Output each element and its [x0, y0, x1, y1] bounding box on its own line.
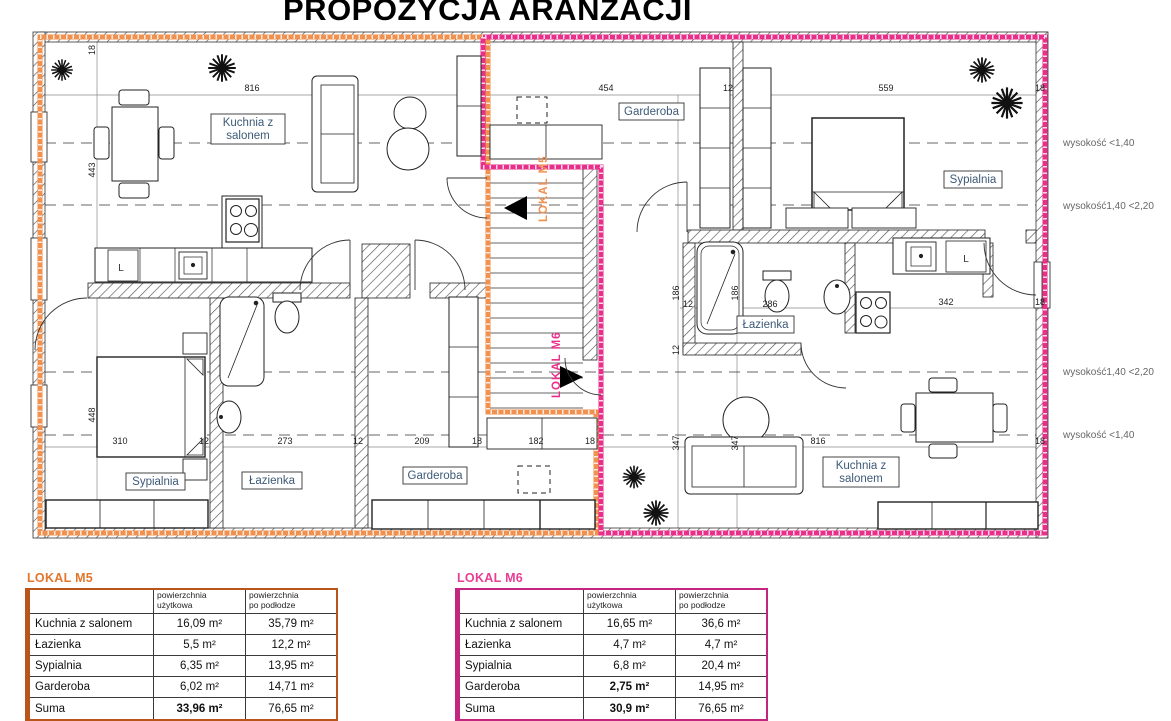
table-value-po-podlodze: 76,65 m²	[676, 698, 766, 719]
table-row-name: Garderoba	[30, 677, 154, 698]
dimension-label: 18	[472, 436, 482, 446]
dimension-label: 12	[199, 436, 209, 446]
dimension-label: 12	[723, 83, 733, 93]
room-label: Sypialnia	[944, 171, 1002, 188]
dimension-label: 448	[87, 407, 97, 422]
table-value-uzytkowa: 6,35 m²	[154, 656, 246, 677]
room-label-text: Łazienka	[249, 475, 296, 487]
table-row-name: Kuchnia z salonem	[30, 614, 154, 635]
dimension-label: 12	[671, 345, 681, 355]
table-value-po-podlodze: 36,6 m²	[676, 614, 766, 635]
side-tables-m5	[387, 97, 429, 170]
sofa-m5	[312, 76, 358, 192]
dimension-label: 18	[1035, 436, 1045, 446]
table-row-name: Suma	[460, 698, 584, 719]
table-value-po-podlodze: 12,2 m²	[246, 635, 336, 656]
room-label: Kuchnia zsalonem	[823, 457, 899, 487]
room-label-text: Kuchnia zsalonem	[836, 460, 887, 485]
kitchen-counter-m6	[893, 238, 990, 274]
sink-m6	[824, 280, 850, 314]
table-header-cell: powierzchniapo podłodze	[246, 590, 336, 614]
bed-m5	[97, 333, 207, 480]
room-label: Łazienka	[737, 316, 794, 333]
floor-plan: Kuchnia zsalonemSypialniaŁazienkaGardero…	[0, 0, 1171, 560]
area-table-grid: powierzchniaużytkowapowierzchniapo podło…	[455, 588, 768, 721]
dimension-label: 18	[585, 436, 595, 446]
table-value-po-podlodze: 14,95 m²	[676, 677, 766, 698]
cabinets-m6	[878, 502, 1038, 529]
dimension-label: 286	[762, 299, 777, 309]
corridor-cabinet-m6	[490, 97, 602, 159]
dimension-label: 342	[938, 297, 953, 307]
toilet-m5	[273, 293, 301, 333]
table-row-name: Suma	[30, 698, 154, 719]
dimension-label: 12	[353, 436, 363, 446]
table-value-uzytkowa: 16,09 m²	[154, 614, 246, 635]
height-zone-label: wysokość <1,40	[1062, 138, 1135, 149]
table-value-uzytkowa: 30,9 m²	[584, 698, 676, 719]
sofa-m6	[685, 437, 803, 494]
height-zone-label: wysokość1,40 <2,20	[1062, 367, 1154, 378]
table-value-uzytkowa: 2,75 m²	[584, 677, 676, 698]
room-label-text: Kuchnia zsalonem	[223, 117, 274, 142]
sink-m5	[217, 401, 241, 433]
table-row-name: Łazienka	[30, 635, 154, 656]
dimension-label: 12	[683, 299, 693, 309]
fridge-label: L	[963, 254, 969, 265]
room-label-text: Sypialnia	[950, 174, 997, 186]
dimension-label: 186	[671, 285, 681, 300]
table-header-cell: powierzchniaużytkowa	[584, 590, 676, 614]
dimension-label: 816	[244, 83, 259, 93]
fridge-label: L	[118, 263, 124, 274]
stair-arrow-m6	[560, 366, 583, 388]
table-value-uzytkowa: 5,5 m²	[154, 635, 246, 656]
wall-cabinet-m5	[457, 56, 481, 156]
dimension-label: 816	[810, 436, 825, 446]
table-corner-cell	[460, 590, 584, 614]
table-row-name: Łazienka	[460, 635, 584, 656]
table-value-uzytkowa: 6,8 m²	[584, 656, 676, 677]
tree-icon	[208, 54, 236, 82]
table-value-po-podlodze: 14,71 m²	[246, 677, 336, 698]
table-value-uzytkowa: 6,02 m²	[154, 677, 246, 698]
dimension-label: 310	[112, 436, 127, 446]
stair-arrow-m5	[504, 196, 527, 220]
kitchen-counter-m5	[95, 196, 312, 282]
dimension-label: 347	[671, 435, 681, 450]
dining-table-m5	[94, 90, 174, 198]
height-zone-label: wysokość <1,40	[1062, 430, 1135, 441]
table-value-uzytkowa: 33,96 m²	[154, 698, 246, 719]
tree-icon	[623, 466, 646, 489]
area-table-m6: LOKAL M6powierzchniaużytkowapowierzchnia…	[455, 571, 768, 721]
area-table-title: LOKAL M5	[27, 571, 338, 585]
tree-icon	[643, 500, 668, 525]
dimension-label: 209	[414, 436, 429, 446]
dimension-label: 182	[528, 436, 543, 446]
tree-icon	[969, 57, 994, 82]
table-row-name: Kuchnia z salonem	[460, 614, 584, 635]
table-header-cell: powierzchniaużytkowa	[154, 590, 246, 614]
table-row-name: Garderoba	[460, 677, 584, 698]
table-value-po-podlodze: 4,7 m²	[676, 635, 766, 656]
dimension-label: 347	[730, 435, 740, 450]
area-table-title: LOKAL M6	[457, 571, 768, 585]
tree-icon	[991, 87, 1022, 118]
wardrobe-sypialnia-m5	[46, 500, 208, 528]
table-value-po-podlodze: 35,79 m²	[246, 614, 336, 635]
dimension-label: 186	[730, 285, 740, 300]
tree-icon	[51, 59, 73, 81]
dimension-label: 454	[598, 83, 613, 93]
dimension-label: 559	[878, 83, 893, 93]
table-row-name: Sypialnia	[460, 656, 584, 677]
unit-label: LOKAL M5	[538, 155, 550, 222]
table-header-cell: powierzchniapo podłodze	[676, 590, 766, 614]
bed-m6	[786, 118, 916, 228]
table-value-po-podlodze: 13,95 m²	[246, 656, 336, 677]
table-corner-cell	[30, 590, 154, 614]
unit-label: LOKAL M6	[551, 331, 563, 398]
stove-m5	[226, 199, 259, 242]
dimension-label: 273	[277, 436, 292, 446]
room-label: Sypialnia	[126, 473, 185, 490]
room-label: Garderoba	[619, 103, 684, 120]
table-value-uzytkowa: 16,65 m²	[584, 614, 676, 635]
room-label-text: Sypialnia	[132, 476, 179, 488]
room-label: Łazienka	[242, 472, 302, 489]
room-label-text: Garderoba	[408, 470, 464, 482]
area-table-grid: powierzchniaużytkowapowierzchniapo podło…	[25, 588, 338, 721]
dimension-label: 443	[87, 162, 97, 177]
table-value-uzytkowa: 4,7 m²	[584, 635, 676, 656]
table-value-po-podlodze: 76,65 m²	[246, 698, 336, 719]
stove-m6	[856, 292, 890, 333]
wardrobe-garderoba-m5	[449, 297, 478, 447]
room-label-text: Łazienka	[742, 319, 789, 331]
dimension-label: 18	[1035, 83, 1045, 93]
room-label: Kuchnia zsalonem	[211, 114, 285, 144]
table-row-name: Sypialnia	[30, 656, 154, 677]
room-label-text: Garderoba	[624, 106, 680, 118]
dimension-label: 18	[1035, 297, 1045, 307]
dining-table-m6	[901, 378, 1007, 458]
shower-m5	[220, 297, 264, 386]
dimension-label: 18	[87, 45, 97, 55]
table-value-po-podlodze: 20,4 m²	[676, 656, 766, 677]
area-table-m5: LOKAL M5powierzchniaużytkowapowierzchnia…	[25, 571, 338, 721]
room-label: Garderoba	[403, 467, 467, 484]
height-zone-label: wysokość1,40 <2,20	[1062, 201, 1154, 212]
